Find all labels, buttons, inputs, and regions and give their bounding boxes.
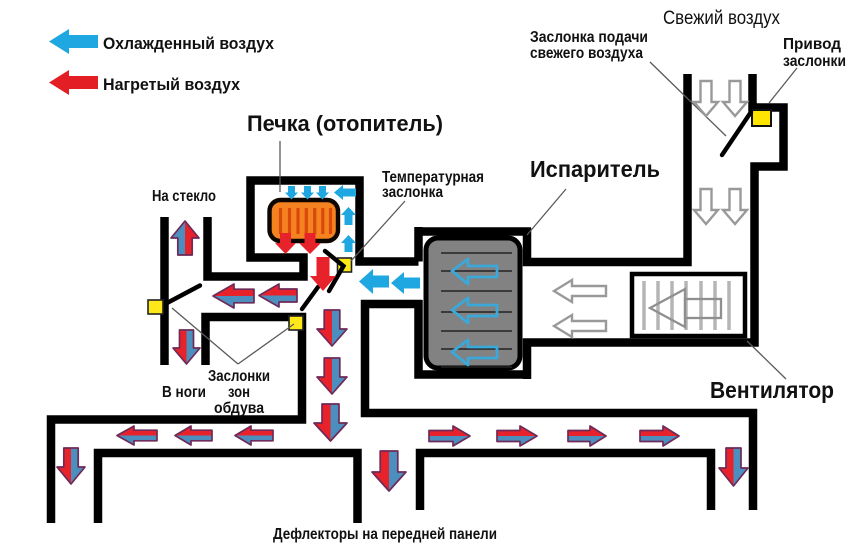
- svg-text:В ноги: В ноги: [162, 384, 206, 401]
- svg-text:Свежий воздух: Свежий воздух: [663, 8, 780, 29]
- svg-text:обдува: обдува: [214, 400, 264, 417]
- svg-text:Испаритель: Испаритель: [530, 156, 660, 182]
- svg-text:заслонки: заслонки: [783, 53, 846, 70]
- svg-text:свежего воздуха: свежего воздуха: [530, 45, 643, 62]
- svg-text:Дефлекторы на передней панели: Дефлекторы на передней панели: [273, 526, 497, 543]
- svg-text:зон: зон: [228, 384, 250, 401]
- svg-text:Привод: Привод: [783, 36, 841, 53]
- svg-text:Заслонки: Заслонки: [208, 368, 270, 385]
- svg-text:Охлажденный воздух: Охлажденный воздух: [103, 34, 274, 53]
- svg-text:Заслонка подачи: Заслонка подачи: [530, 29, 648, 46]
- svg-text:заслонка: заслонка: [382, 184, 443, 201]
- svg-text:Вентилятор: Вентилятор: [710, 377, 834, 403]
- svg-text:Печка (отопитель): Печка (отопитель): [247, 111, 443, 136]
- svg-text:На стекло: На стекло: [152, 188, 216, 205]
- svg-text:Нагретый воздух: Нагретый воздух: [103, 75, 241, 94]
